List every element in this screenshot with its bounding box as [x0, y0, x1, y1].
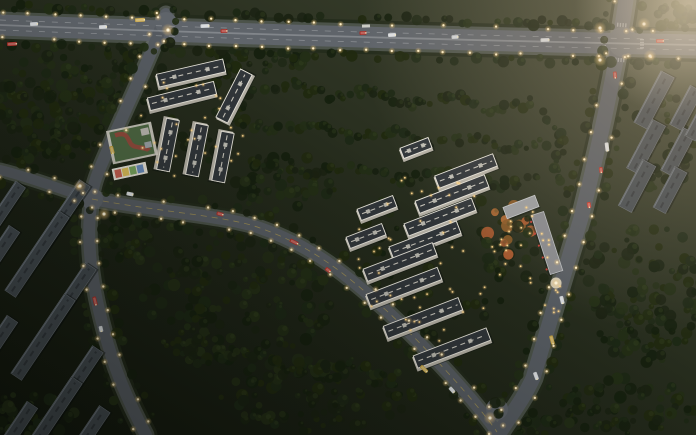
- vignette: [0, 0, 696, 435]
- atmosphere-overlays: [0, 0, 696, 435]
- aerial-site-rendering: [0, 0, 696, 435]
- masterplan-dusk-render: [0, 0, 696, 435]
